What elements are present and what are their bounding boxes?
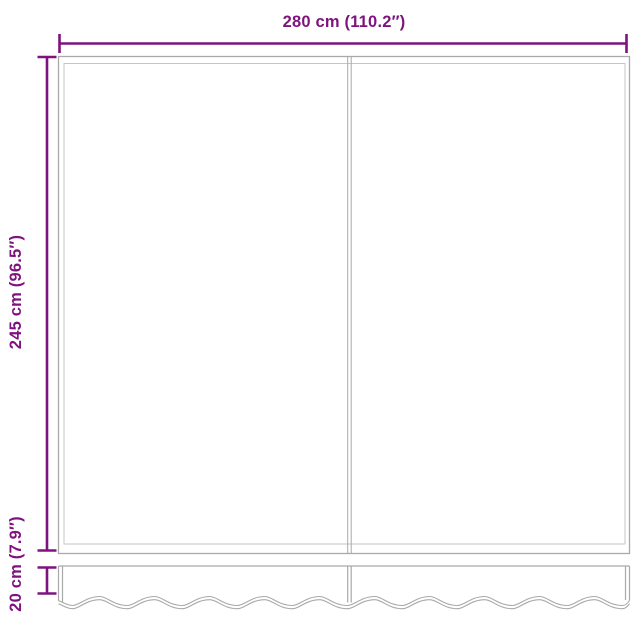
height-dimension-label: 245 cm (96.5″) <box>5 182 27 402</box>
valance-wavy-edge <box>59 597 630 609</box>
awning-fabric-drawing <box>0 0 640 640</box>
dimension-diagram: 280 cm (110.2″) 245 cm (96.5″) 20 cm (7.… <box>0 0 640 640</box>
valance-wavy-edge-lower <box>59 600 630 609</box>
width-dimension-line <box>60 34 627 53</box>
fabric-panel-outline <box>59 57 630 554</box>
width-dimension-label: 280 cm (110.2″) <box>58 11 630 33</box>
valance-dimension-label: 20 cm (7.9″) <box>5 454 27 640</box>
valance-dimension-line <box>38 568 57 594</box>
height-dimension-line <box>38 57 57 551</box>
